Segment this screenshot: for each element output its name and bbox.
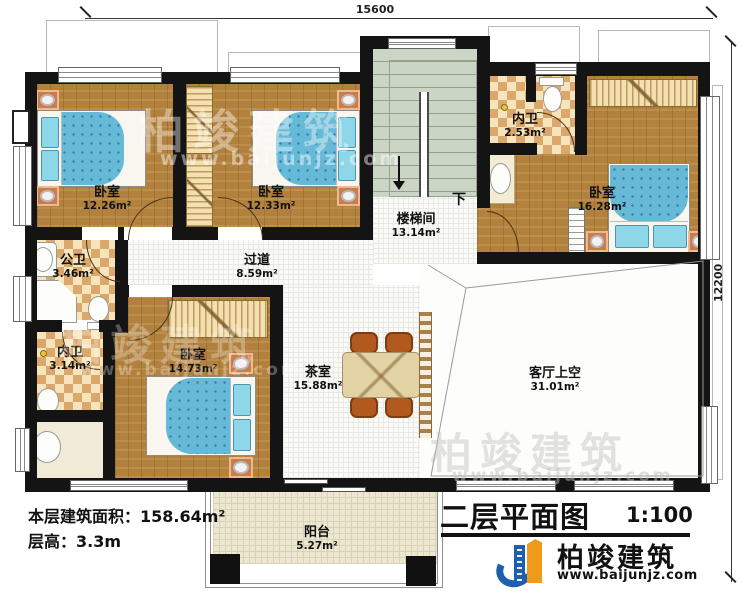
- dimension-line-right: [731, 42, 732, 582]
- room-label-public-bath: 公卫 3.46m²: [42, 254, 104, 280]
- dimension-height: 12200: [712, 243, 728, 323]
- wardrobe: [186, 158, 213, 227]
- chair: [350, 332, 378, 354]
- logo-url: www.baijunjz.com: [557, 568, 717, 583]
- floor-height-value: 3.3m: [76, 532, 121, 551]
- floor-area-label: 本层建筑面积：: [28, 507, 140, 526]
- window: [13, 146, 32, 226]
- window: [700, 96, 720, 260]
- dimension-line-top: [85, 18, 713, 19]
- wall: [477, 62, 710, 76]
- room-label-stairwell: 楼梯间 13.14m²: [385, 213, 447, 239]
- pillow: [41, 150, 59, 181]
- chair: [385, 396, 413, 418]
- eave-outline: [598, 30, 710, 64]
- room-label-bedroom-master: 卧室 16.28m²: [567, 187, 637, 213]
- logo-icon: [496, 537, 554, 591]
- window: [574, 480, 674, 491]
- logo-building-orange: [527, 539, 542, 583]
- room-label-tea-room: 茶室 15.88m²: [287, 366, 349, 392]
- window: [230, 67, 340, 83]
- wall: [360, 36, 373, 227]
- stair-handrail: [419, 92, 429, 197]
- window: [70, 480, 188, 491]
- wall: [115, 285, 129, 297]
- toilet: [543, 86, 562, 112]
- wall: [172, 227, 218, 240]
- floor-height-note: 层高：3.3m: [28, 528, 228, 550]
- wall: [99, 320, 115, 332]
- logo-name: 柏竣建筑: [557, 536, 717, 568]
- dimension-width: 15600: [340, 3, 410, 16]
- pillow: [615, 225, 649, 248]
- dimension-tick: [79, 6, 91, 18]
- chair: [385, 332, 413, 354]
- pillow: [233, 384, 251, 416]
- sink: [33, 431, 61, 463]
- window: [456, 480, 556, 491]
- wall: [173, 84, 186, 227]
- nightstand: [36, 186, 59, 206]
- window: [15, 428, 30, 472]
- sink: [490, 163, 511, 194]
- room-label-living-void: 客厅上空 31.01m²: [505, 367, 605, 393]
- room-label-ensuite-top: 内卫 2.53m²: [494, 113, 556, 139]
- wardrobe: [168, 300, 268, 338]
- room-label-ensuite-left: 内卫 3.14m²: [39, 346, 101, 372]
- tea-table: [342, 352, 420, 398]
- wall: [262, 227, 373, 240]
- nightstand: [229, 457, 253, 478]
- floor-plan: 卧室 12.26m² 卧室 12.33m² 卧室 14.73m² 卧室 16.2…: [0, 0, 750, 597]
- wall: [25, 410, 115, 422]
- room-label-bedroom-1: 卧室 12.26m²: [76, 186, 138, 212]
- drawing-scale: 1:100: [626, 503, 690, 529]
- room-label-corridor: 过道 8.59m²: [226, 254, 288, 280]
- bed-blanket: [60, 112, 124, 185]
- wall: [25, 227, 82, 240]
- dresser: [568, 207, 585, 257]
- toilet-tank: [539, 77, 564, 86]
- nightstand: [229, 353, 253, 374]
- stair-arrow: [398, 156, 400, 182]
- floor-area-value: 158.64m²: [140, 507, 225, 526]
- nightstand: [586, 231, 608, 252]
- pillow: [41, 117, 59, 148]
- pillow: [233, 419, 251, 451]
- hook-icon: [501, 104, 508, 111]
- window: [58, 67, 162, 83]
- nightstand: [36, 90, 59, 110]
- wall: [575, 62, 587, 155]
- wall-niche: [12, 110, 30, 144]
- window: [13, 276, 32, 322]
- window: [388, 38, 456, 49]
- nightstand: [337, 90, 360, 110]
- sliding-door: [322, 487, 366, 492]
- wardrobe: [186, 86, 213, 154]
- room-label-bedroom-3: 卧室 14.73m²: [162, 349, 224, 375]
- window: [535, 63, 577, 75]
- logo-building-blue: [514, 545, 525, 581]
- wardrobe: [589, 79, 697, 107]
- room-label-bedroom-2: 卧室 12.33m²: [240, 186, 302, 212]
- wall: [172, 285, 283, 297]
- pillow: [338, 117, 356, 148]
- sliding-door: [284, 479, 328, 484]
- balcony-column: [406, 556, 436, 586]
- wall: [270, 285, 283, 478]
- toilet: [88, 296, 109, 322]
- stair-inner-line: [389, 60, 477, 197]
- page-title: 二层平面图: [440, 494, 625, 530]
- wall: [118, 227, 124, 240]
- nightstand: [337, 186, 360, 206]
- floor-area-note: 本层建筑面积：158.64m²: [28, 503, 288, 525]
- void-railing: [419, 312, 432, 438]
- wall: [103, 332, 115, 478]
- bed-blanket: [276, 112, 338, 185]
- chair: [350, 396, 378, 418]
- dimension-tick: [705, 6, 717, 18]
- eave-outline: [488, 26, 580, 64]
- stairs-down-label: 下: [448, 193, 470, 209]
- pillow: [338, 150, 356, 181]
- pillow: [653, 225, 687, 248]
- balcony-column: [210, 554, 240, 584]
- bed-blanket: [166, 378, 230, 454]
- floor-height-label: 层高：: [28, 532, 76, 551]
- room-label-balcony: 阳台 5.27m²: [286, 526, 348, 552]
- wall: [477, 143, 537, 155]
- stair-arrow-head: [393, 181, 405, 190]
